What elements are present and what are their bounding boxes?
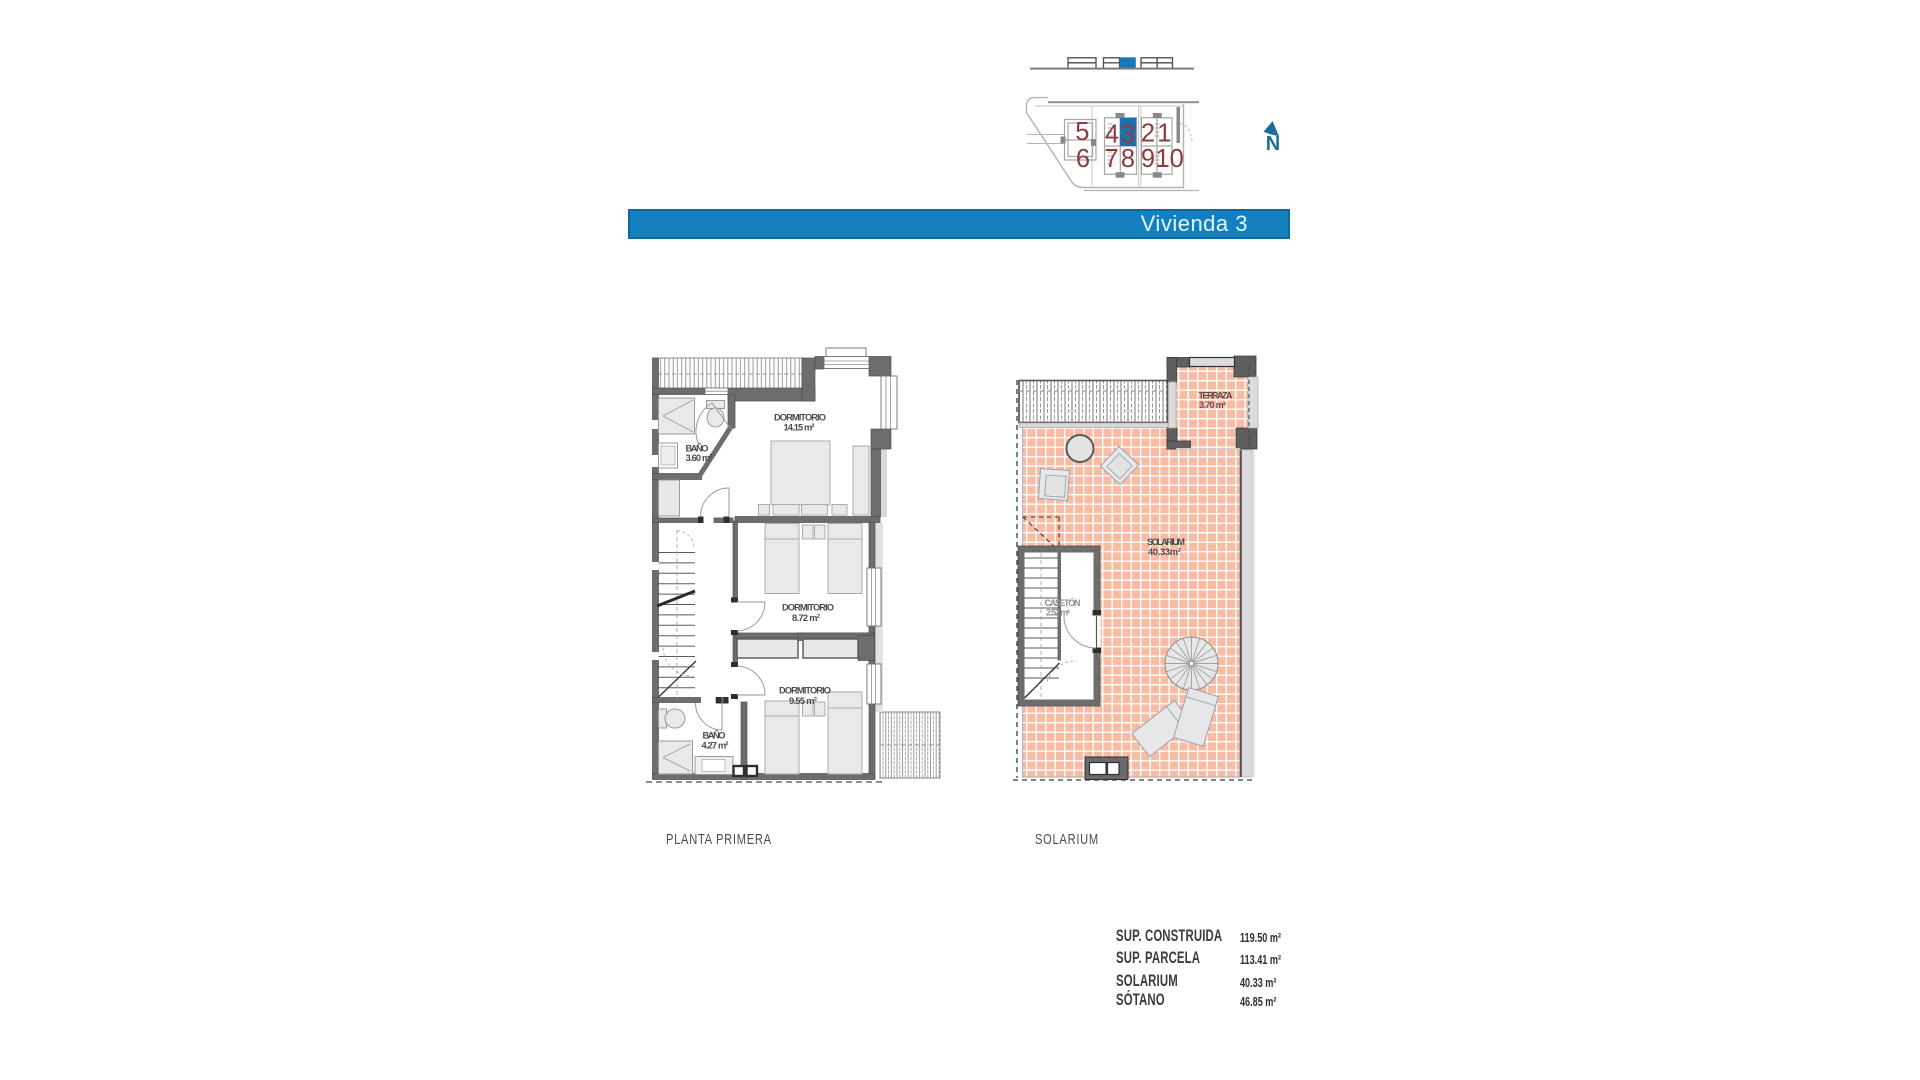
svg-text:SOLARIUM: SOLARIUM <box>1147 537 1185 547</box>
svg-text:7: 7 <box>1104 145 1118 173</box>
svg-text:5: 5 <box>1075 118 1089 146</box>
svg-text:9: 9 <box>1141 145 1155 173</box>
svg-text:10: 10 <box>1156 145 1184 173</box>
svg-text:2.52 m²: 2.52 m² <box>1046 608 1070 618</box>
svg-text:9.55 m²: 9.55 m² <box>789 696 817 706</box>
svg-text:DORMITORIO: DORMITORIO <box>779 686 831 696</box>
svg-text:BAÑO: BAÑO <box>686 444 709 454</box>
svg-text:8.72 m²: 8.72 m² <box>792 613 820 623</box>
svg-text:6: 6 <box>1076 145 1090 173</box>
svg-text:2: 2 <box>1141 120 1155 148</box>
svg-text:8: 8 <box>1121 145 1135 173</box>
svg-text:BAÑO: BAÑO <box>703 731 726 741</box>
svg-text:14.15 m²: 14.15 m² <box>784 423 815 433</box>
svg-text:3.70 m²: 3.70 m² <box>1199 400 1226 410</box>
svg-text:N: N <box>1266 133 1280 155</box>
svg-text:CASETÓN: CASETÓN <box>1045 597 1081 608</box>
svg-text:1: 1 <box>1157 120 1171 148</box>
svg-text:3.60 m²: 3.60 m² <box>686 453 713 463</box>
svg-text:DORMITORIO: DORMITORIO <box>774 413 826 423</box>
svg-text:TERRAZA: TERRAZA <box>1199 391 1234 401</box>
svg-text:4.27 m²: 4.27 m² <box>702 741 729 751</box>
svg-text:DORMITORIO: DORMITORIO <box>782 603 834 613</box>
svg-text:40.33m²: 40.33m² <box>1148 547 1181 557</box>
